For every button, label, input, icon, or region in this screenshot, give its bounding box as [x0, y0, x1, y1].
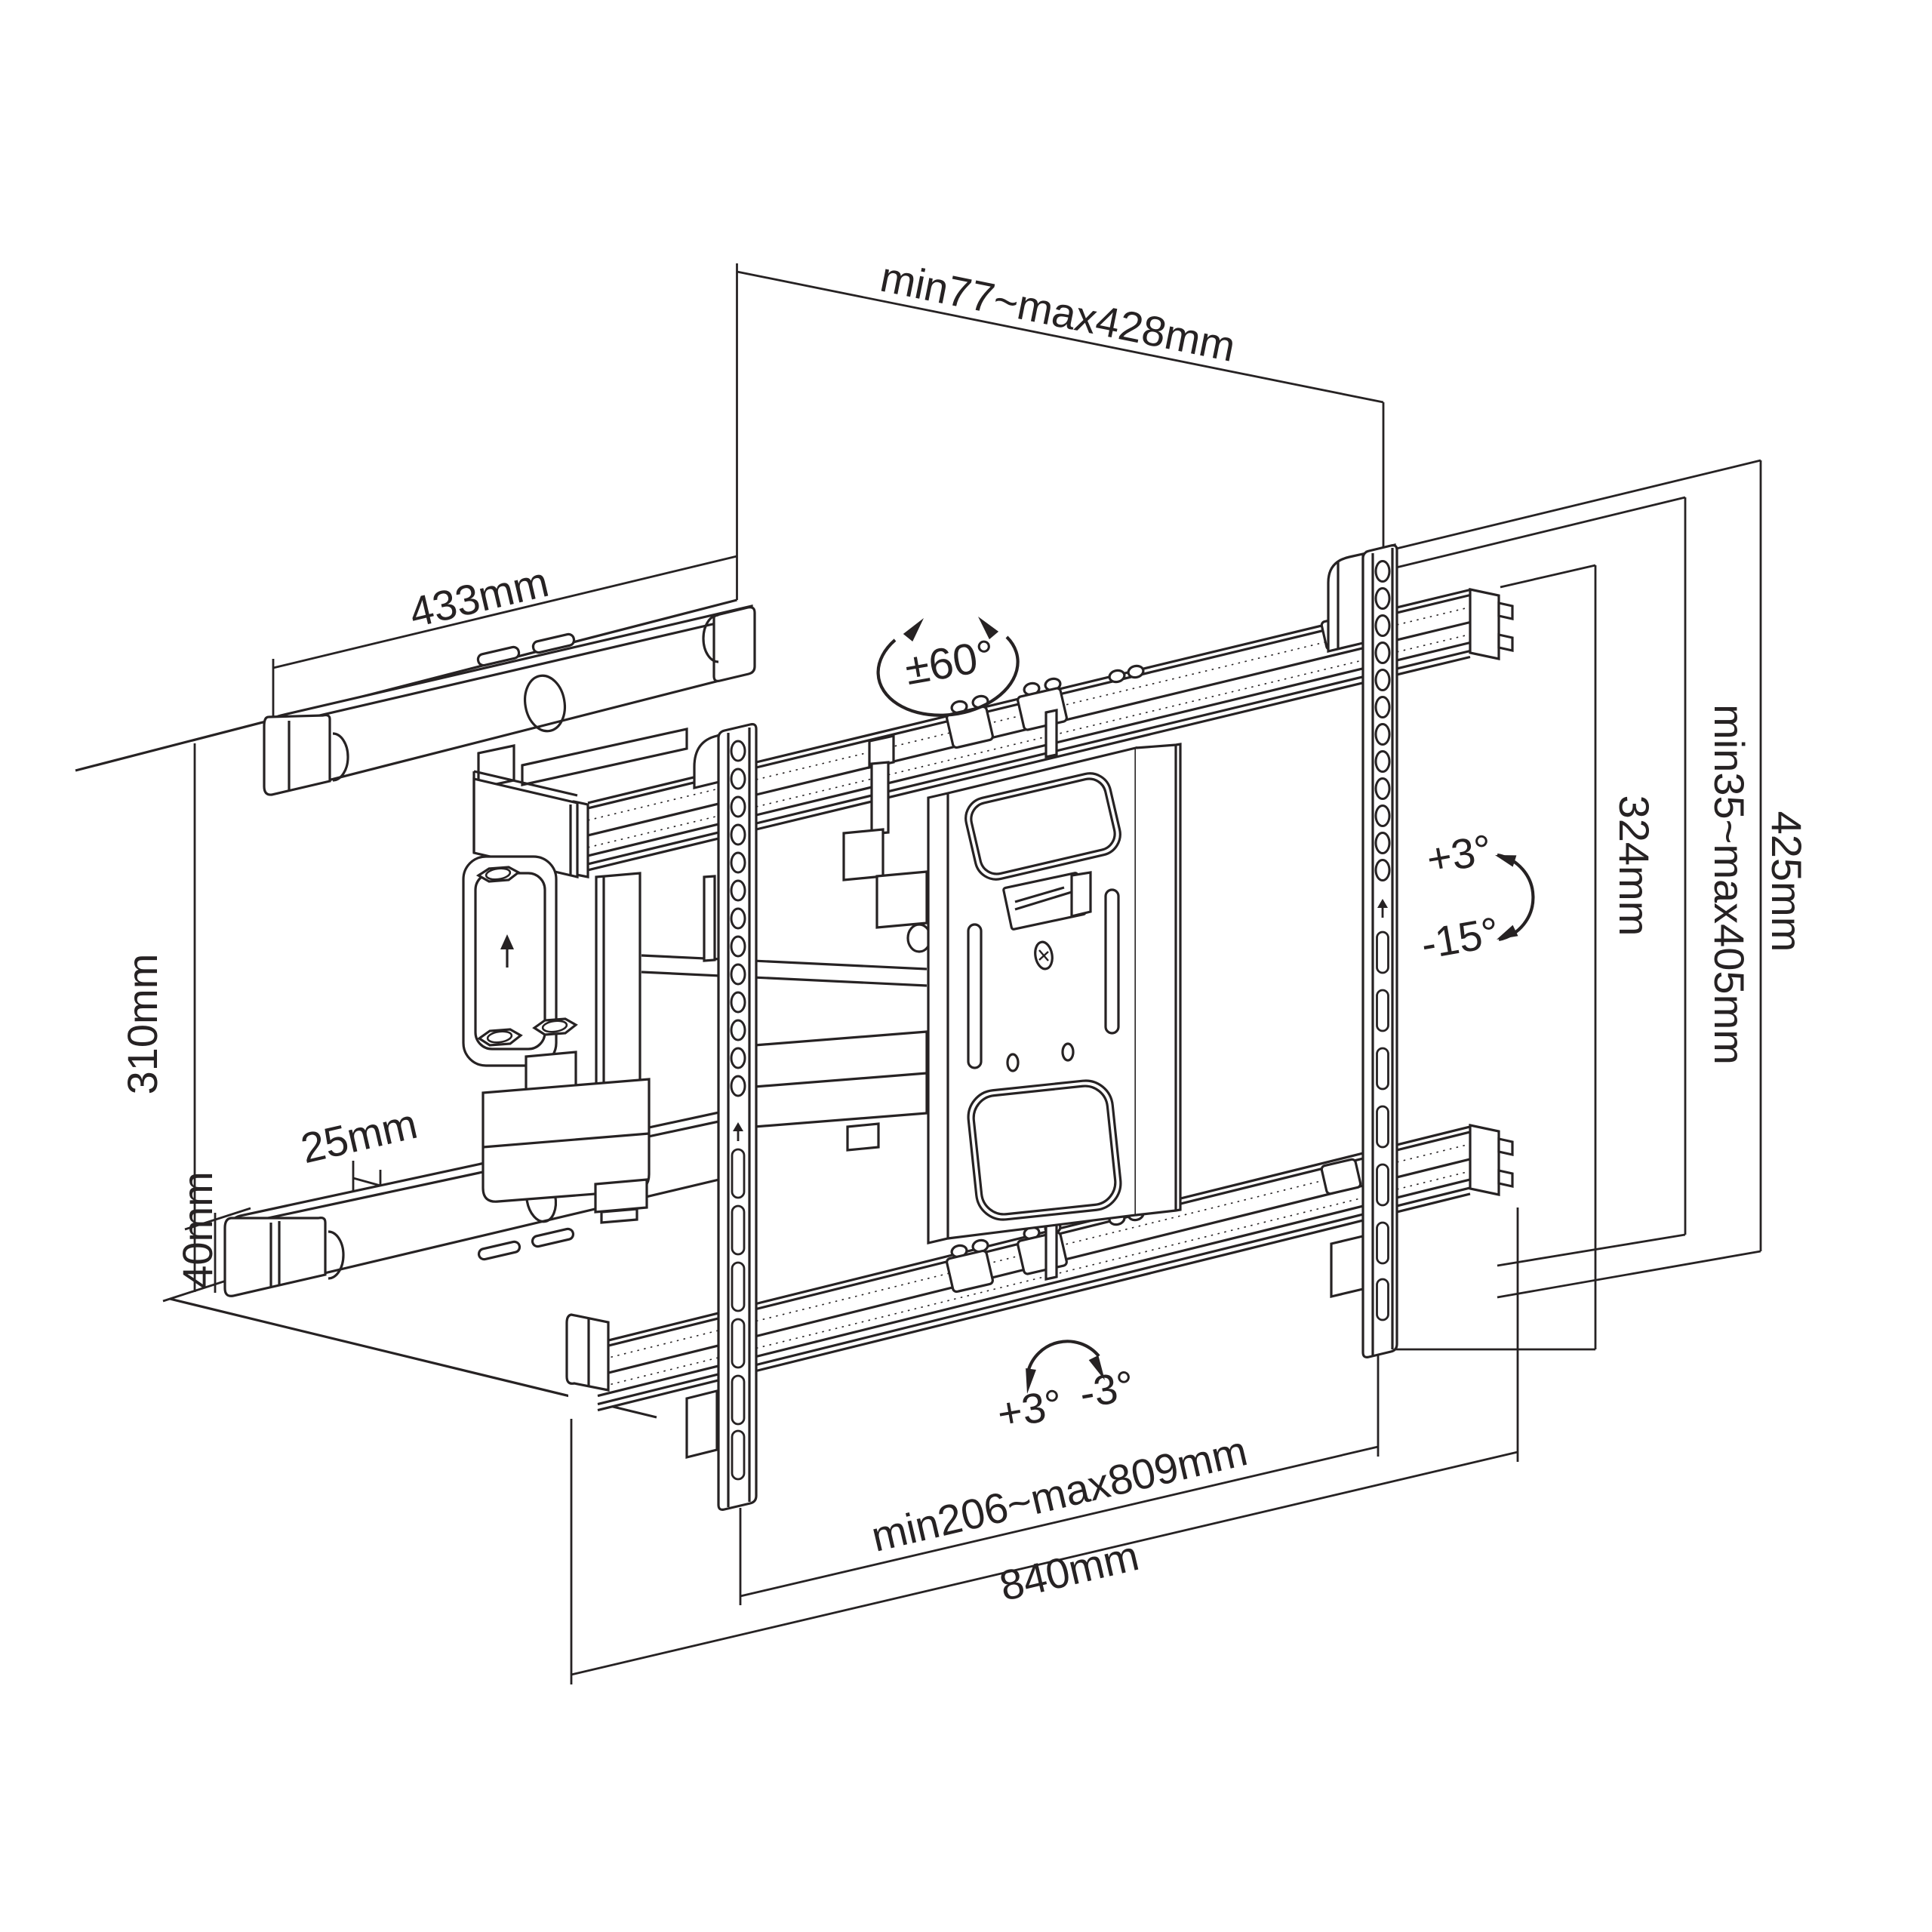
svg-text:40mm: 40mm: [174, 1171, 221, 1289]
svg-text:min35~max405mm: min35~max405mm: [1706, 704, 1753, 1065]
svg-text:-3°: -3°: [1076, 1361, 1138, 1418]
svg-text:310mm: 310mm: [118, 954, 166, 1095]
svg-text:324mm: 324mm: [1611, 795, 1658, 937]
svg-text:425mm: 425mm: [1763, 811, 1810, 952]
